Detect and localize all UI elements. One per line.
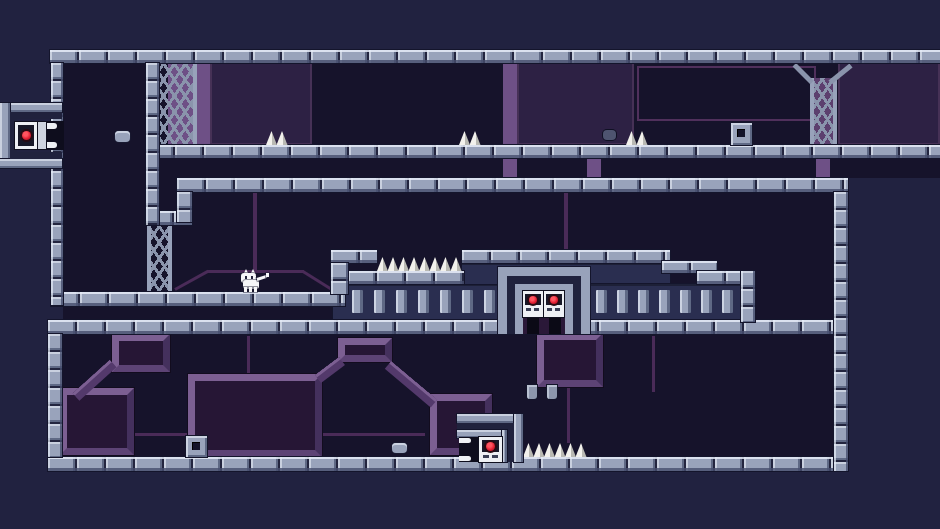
exit-frame-dark-top	[457, 423, 514, 430]
gate-panel-vent	[534, 308, 539, 311]
exit-frame-dark-top	[10, 112, 62, 119]
fence-slat	[701, 290, 712, 313]
background-pipe-line	[567, 387, 570, 443]
shaft-wall	[146, 63, 159, 225]
small-debris	[392, 443, 407, 453]
exit-frame-inner-right	[502, 430, 507, 462]
cat-leg	[254, 287, 257, 292]
hole-block	[186, 436, 207, 457]
background-purple-column	[816, 158, 830, 178]
cat-ledge	[51, 292, 345, 306]
tower-cap	[331, 250, 377, 263]
fence-slat	[374, 290, 385, 313]
game-canvas[interactable]	[0, 0, 940, 529]
bottom-exit-door[interactable]	[457, 414, 523, 462]
gate-panel-vent	[547, 308, 552, 311]
gate-door-panel[interactable]	[544, 291, 564, 317]
player-cat[interactable]	[240, 268, 270, 292]
left-exit-door[interactable]	[0, 103, 64, 168]
exit-frame-bottom	[0, 159, 62, 168]
exit-indicator-panel[interactable]	[479, 437, 502, 462]
top-ceiling	[50, 50, 940, 63]
fence-slat	[638, 290, 649, 313]
exit-frame-right	[514, 414, 523, 462]
background-beveled-block	[338, 338, 392, 362]
exit-frame-dark-bottom	[10, 152, 62, 159]
background-pipe-line	[652, 336, 655, 392]
cat-leg	[249, 287, 252, 292]
fence-slat	[440, 290, 451, 313]
fence-slat	[596, 290, 607, 313]
gate-panel-screen	[525, 294, 541, 305]
hole-block-center	[737, 129, 745, 137]
background-purple-panel	[210, 62, 312, 145]
fence-slat	[680, 290, 691, 313]
red-indicator[interactable]	[22, 131, 31, 140]
background-pipe-line	[253, 192, 257, 272]
exit-door-leaf	[459, 438, 471, 443]
fence-right-col	[741, 271, 755, 322]
background-beveled-block	[112, 334, 170, 372]
fence-slat	[462, 290, 473, 313]
fence-slat	[352, 290, 363, 313]
background-beveled-block	[188, 374, 322, 457]
gate-door-panel[interactable]	[523, 291, 543, 317]
exit-frame-dark-right	[507, 423, 514, 462]
bottom-floor	[48, 457, 848, 471]
hole-block-center	[192, 442, 200, 450]
hanging-peg	[547, 385, 557, 399]
background-pipe-line	[247, 336, 250, 374]
gate-panel-vent	[526, 308, 531, 311]
fence-slat	[722, 290, 733, 313]
fence-slat	[418, 290, 429, 313]
upper-floor	[146, 145, 940, 158]
main-floor	[48, 320, 848, 334]
background-purple-panel	[517, 62, 634, 145]
exit-panel-vent	[483, 455, 489, 458]
fence-slat	[617, 290, 628, 313]
spike-ledge	[348, 271, 464, 284]
mid-floor	[177, 178, 848, 192]
gate-panel-vent	[555, 308, 560, 311]
red-indicator[interactable]	[486, 442, 495, 451]
background-outline-rect	[637, 66, 816, 121]
cat-tail-tip	[266, 273, 269, 277]
fence-slat	[484, 290, 495, 313]
mid-floor-left-col	[177, 192, 192, 222]
bottom-left-wall	[48, 334, 62, 457]
exit-indicator-panel[interactable]	[15, 122, 37, 149]
red-indicator[interactable]	[550, 296, 558, 304]
small-debris	[603, 130, 616, 140]
background-purple-column	[503, 62, 517, 178]
small-debris	[115, 131, 130, 142]
exit-door-leaf	[459, 456, 471, 461]
shaft-truss	[147, 225, 172, 292]
exit-door-slab	[36, 122, 46, 149]
background-pipe-line	[564, 192, 568, 250]
cat-eye-icon	[251, 276, 253, 279]
left-wall	[51, 63, 63, 305]
background-beveled-block	[60, 388, 134, 455]
hanging-peg	[527, 385, 537, 399]
background-beveled-block	[537, 333, 603, 387]
fence-slat	[396, 290, 407, 313]
cat-leg	[244, 287, 247, 292]
fence-slat	[659, 290, 670, 313]
upper-right-truss	[810, 78, 837, 145]
red-indicator[interactable]	[529, 296, 537, 304]
background-purple-panel	[838, 62, 940, 145]
cat-eye-icon	[245, 276, 247, 279]
exit-panel-vent	[492, 455, 498, 458]
central-gate[interactable]	[498, 267, 590, 334]
gate-top	[462, 250, 670, 263]
right-wall	[834, 192, 848, 471]
gate-panel-screen	[546, 294, 562, 305]
hole-block	[731, 123, 752, 145]
tower-col	[331, 263, 348, 294]
